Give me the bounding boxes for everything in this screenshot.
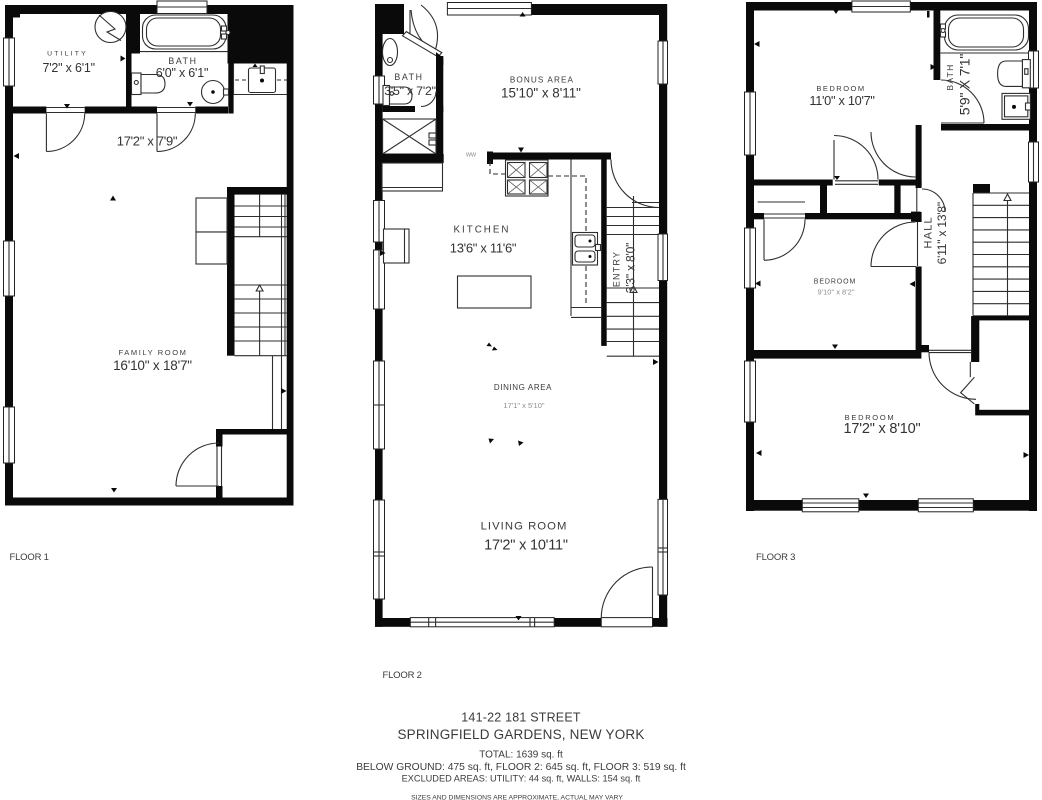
- svg-text:17'1" x 5'10": 17'1" x 5'10": [503, 401, 544, 410]
- svg-text:17'2" x 7'9": 17'2" x 7'9": [117, 133, 178, 148]
- svg-text:BEDROOM: BEDROOM: [816, 84, 865, 93]
- svg-text:TOTAL: 1639 sq. ft: TOTAL: 1639 sq. ft: [479, 750, 563, 761]
- svg-text:KITCHEN: KITCHEN: [453, 225, 510, 236]
- svg-text:FLOOR 1: FLOOR 1: [10, 552, 49, 563]
- svg-text:3'5" x 7'2": 3'5" x 7'2": [384, 84, 436, 98]
- svg-text:15'10" x 8'11": 15'10" x 8'11": [501, 86, 581, 101]
- svg-text:7'2" x 6'1": 7'2" x 6'1": [42, 61, 94, 75]
- svg-text:ENTRY: ENTRY: [612, 251, 622, 287]
- svg-text:BELOW GROUND: 475 sq. ft, FLOO: BELOW GROUND: 475 sq. ft, FLOOR 2: 645 s…: [356, 762, 686, 773]
- svg-text:FLOOR 2: FLOOR 2: [383, 670, 422, 681]
- svg-text:SIZES AND DIMENSIONS ARE APPRO: SIZES AND DIMENSIONS ARE APPROXIMATE, AC…: [411, 795, 623, 800]
- svg-text:17'2" x 10'11": 17'2" x 10'11": [484, 538, 568, 554]
- svg-text:BATH: BATH: [168, 56, 197, 66]
- svg-text:FLOOR 3: FLOOR 3: [756, 552, 795, 563]
- svg-text:16'10" x 18'7": 16'10" x 18'7": [113, 358, 192, 373]
- svg-text:11'0" x 10'7": 11'0" x 10'7": [809, 93, 874, 108]
- svg-text:9'10" x 8'2": 9'10" x 8'2": [818, 288, 855, 297]
- svg-text:EXCLUDED AREAS: UTILITY: 44 sq: EXCLUDED AREAS: UTILITY: 44 sq. ft, WALL…: [402, 774, 641, 784]
- svg-text:6'0" x 6'1": 6'0" x 6'1": [156, 66, 208, 80]
- svg-text:BEDROOM: BEDROOM: [814, 279, 856, 286]
- svg-text:HALL: HALL: [923, 216, 935, 248]
- svg-text:13'6" x 11'6": 13'6" x 11'6": [450, 241, 517, 256]
- svg-text:LIVING ROOM: LIVING ROOM: [481, 521, 568, 533]
- svg-text:SPRINGFIELD GARDENS, NEW YORK: SPRINGFIELD GARDENS, NEW YORK: [397, 727, 644, 742]
- svg-text:BONUS AREA: BONUS AREA: [510, 76, 574, 85]
- svg-text:DINING AREA: DINING AREA: [494, 383, 552, 392]
- svg-text:ww: ww: [465, 152, 477, 159]
- svg-text:17'2" x 8'10": 17'2" x 8'10": [844, 421, 921, 437]
- svg-text:BATH: BATH: [945, 63, 955, 90]
- svg-text:FAMILY ROOM: FAMILY ROOM: [119, 348, 188, 357]
- svg-text:5'9" X 7'1": 5'9" X 7'1": [957, 54, 973, 116]
- svg-text:6'11" x 13'8": 6'11" x 13'8": [935, 202, 949, 264]
- svg-text:141-22 181 STREET: 141-22 181 STREET: [461, 711, 581, 725]
- svg-text:UTILITY: UTILITY: [47, 51, 88, 58]
- svg-text:BATH: BATH: [394, 72, 423, 82]
- svg-text:3'3" x 8'0": 3'3" x 8'0": [624, 243, 638, 293]
